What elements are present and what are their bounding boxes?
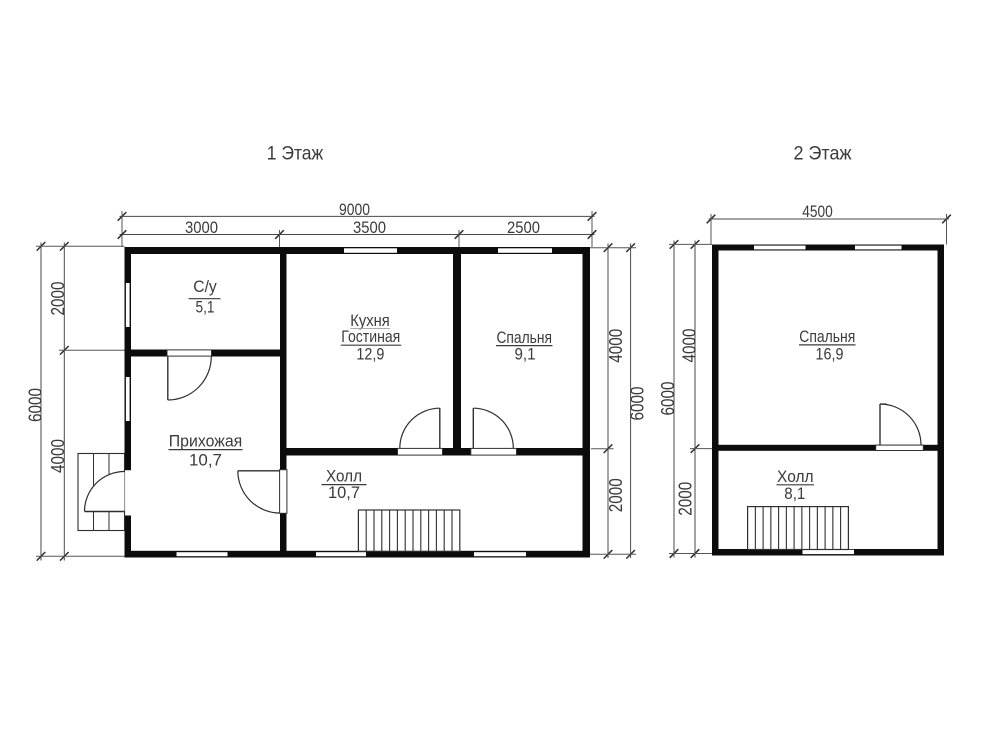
svg-text:2000: 2000	[48, 282, 68, 316]
svg-text:2000: 2000	[606, 478, 626, 512]
svg-text:10,7: 10,7	[189, 451, 222, 469]
svg-text:Спальня: Спальня	[496, 329, 552, 347]
svg-text:4000: 4000	[606, 329, 626, 363]
svg-text:5,1: 5,1	[196, 299, 215, 317]
svg-text:2 Этаж: 2 Этаж	[794, 143, 852, 165]
svg-text:16,9: 16,9	[816, 345, 844, 363]
svg-text:4000: 4000	[679, 329, 699, 363]
svg-text:10,7: 10,7	[328, 484, 360, 502]
svg-text:3500: 3500	[353, 218, 386, 237]
svg-text:С/у: С/у	[193, 278, 217, 296]
svg-text:4500: 4500	[802, 202, 833, 221]
svg-text:12,9: 12,9	[356, 346, 384, 364]
svg-text:Прихожая: Прихожая	[169, 432, 243, 450]
svg-text:6000: 6000	[627, 387, 647, 421]
svg-text:Холл: Холл	[777, 468, 814, 486]
svg-text:Спальня: Спальня	[799, 328, 855, 346]
svg-text:6000: 6000	[25, 388, 45, 422]
svg-text:8,1: 8,1	[784, 485, 805, 503]
svg-text:2000: 2000	[676, 482, 696, 516]
svg-text:3000: 3000	[185, 218, 218, 237]
svg-text:9000: 9000	[339, 200, 370, 219]
svg-text:4000: 4000	[48, 439, 68, 473]
svg-text:9,1: 9,1	[515, 346, 536, 364]
svg-text:6000: 6000	[658, 382, 678, 416]
svg-text:2500: 2500	[507, 218, 540, 237]
svg-text:Гостиная: Гостиная	[341, 328, 400, 346]
svg-text:1 Этаж: 1 Этаж	[267, 143, 324, 165]
